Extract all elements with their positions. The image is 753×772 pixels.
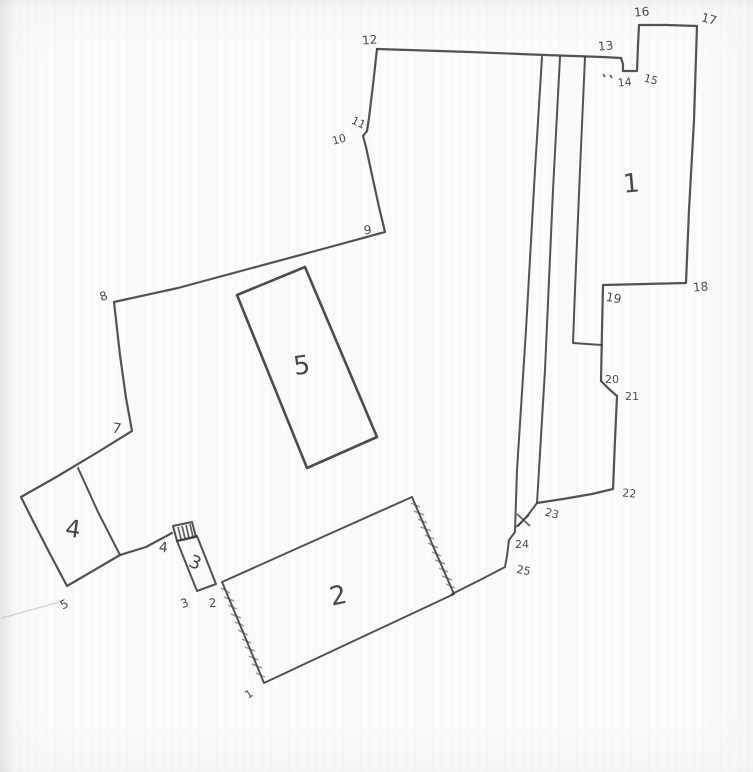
vertex-2-label: 2 <box>208 596 217 611</box>
vertex-25-label: 25 <box>516 563 532 578</box>
boundary-top-right-polyline <box>377 25 697 503</box>
vertex-15-label: 15 <box>642 72 659 88</box>
region-2-right-edge-hatching <box>411 503 455 588</box>
vertex-23-label: 23 <box>543 506 560 522</box>
vertex-7-label: 7 <box>111 420 123 437</box>
stray-dot-marks <box>603 74 612 78</box>
vertex-5-label: 5 <box>58 596 71 612</box>
vertex-8-label: 8 <box>98 288 110 304</box>
faint-construction-line <box>2 601 63 618</box>
region-3-label: 3 <box>186 551 204 575</box>
region-2-left-edge-hatching <box>221 588 265 677</box>
parallel-line-c <box>573 57 602 345</box>
sketch-svg: 1 2 3 4 5 1 2 3 4 5 7 8 9 10 11 12 13 14… <box>0 0 753 772</box>
vertex-3-label: 3 <box>179 595 191 611</box>
boundary-left-polyline <box>21 49 385 586</box>
vertex-18-label: 18 <box>692 279 708 294</box>
x-mark <box>516 514 530 527</box>
vertex-4-label: 4 <box>158 540 168 557</box>
vertex-19-label: 19 <box>605 290 622 306</box>
region-4-divider-line <box>78 468 120 555</box>
region-1-label: 1 <box>622 168 641 199</box>
region-5-label: 5 <box>292 350 313 382</box>
vertex-17-label: 17 <box>700 10 718 27</box>
vertex-9-label: 9 <box>363 223 372 238</box>
vertex-20-label: 20 <box>605 373 619 386</box>
parallel-line-b <box>518 57 560 526</box>
vertex-12-label: 12 <box>361 32 377 47</box>
vertex-24-label: 24 <box>515 538 529 551</box>
sketch-canvas: 1 2 3 4 5 1 2 3 4 5 7 8 9 10 11 12 13 14… <box>0 0 753 772</box>
vertex-10-label: 10 <box>331 132 348 148</box>
vertex-16-label: 16 <box>633 4 649 19</box>
vertex-14-label: 14 <box>617 75 632 89</box>
vertex-11-label: 11 <box>349 114 367 132</box>
vertex-22-label: 22 <box>622 486 637 500</box>
vertex-13-label: 13 <box>597 38 613 53</box>
region-2-label: 2 <box>327 580 349 613</box>
vertex-21-label: 21 <box>625 390 639 403</box>
region-4-label: 4 <box>64 514 83 544</box>
vertex-1-label: 1 <box>242 687 255 702</box>
